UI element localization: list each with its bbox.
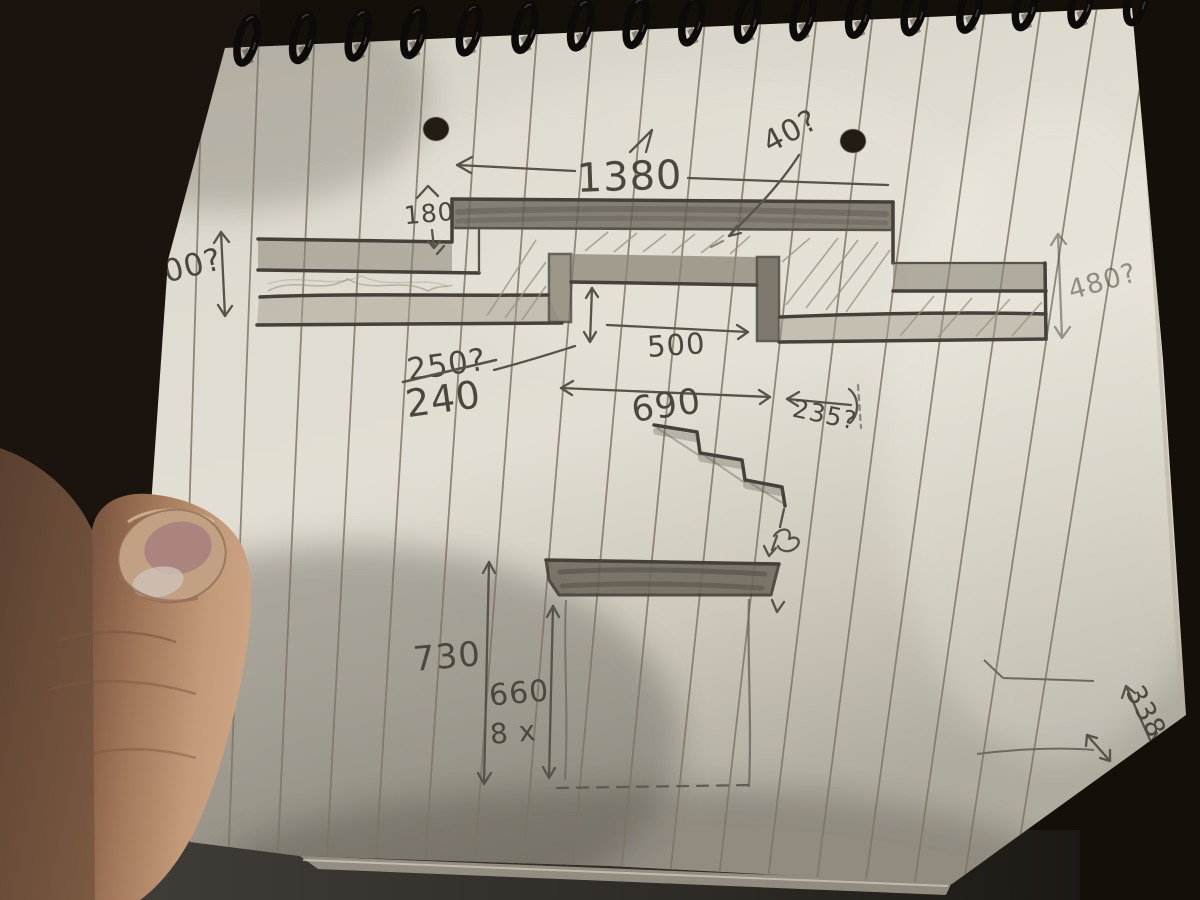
notebook-photo: 1380 40? 180 300? 250? (0, 0, 1200, 900)
dimension-label-count: 8 x (489, 714, 538, 751)
wall-lower-right-band (779, 313, 1046, 342)
punch-hole-right (840, 129, 866, 153)
bench-left-leg (565, 600, 566, 780)
punch-hole-left (423, 117, 449, 141)
wall-lower-left-band (257, 294, 562, 325)
dimension-label: 500 (646, 326, 707, 364)
dimension-label: 660 (488, 673, 551, 713)
dimension-label: 1380 (576, 152, 683, 202)
dimension-label: 730 (411, 634, 482, 680)
hand-base (0, 448, 96, 900)
dimension-label: 180 (403, 197, 456, 230)
